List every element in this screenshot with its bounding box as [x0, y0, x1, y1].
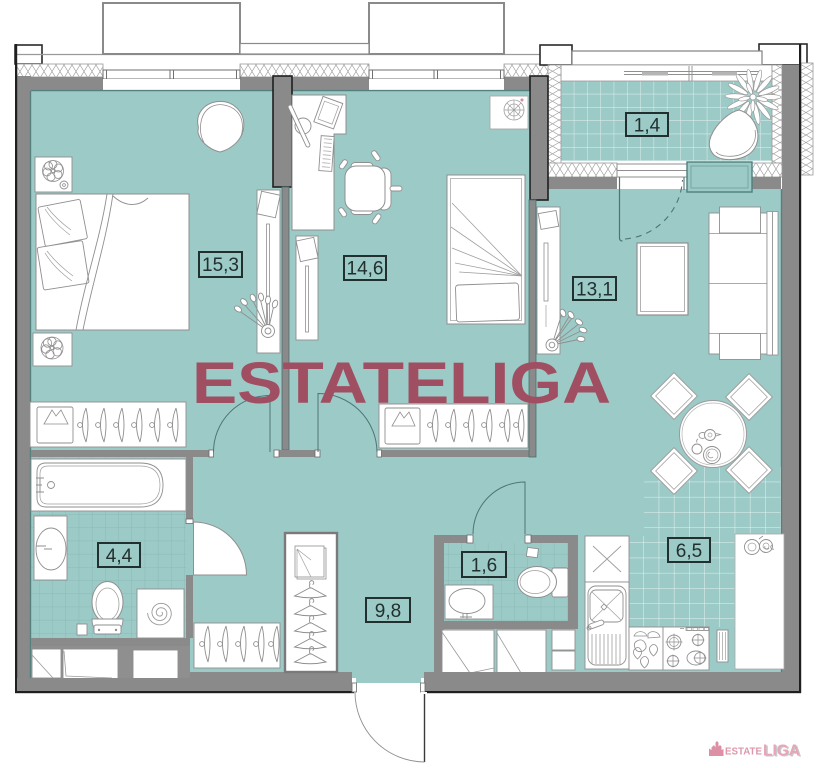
- svg-text:ESTATE: ESTATE: [725, 746, 762, 758]
- svg-text:1,6: 1,6: [471, 556, 497, 577]
- svg-text:ESTATELIGA: ESTATELIGA: [192, 351, 611, 416]
- svg-text:6,5: 6,5: [676, 541, 702, 562]
- svg-text:1,4: 1,4: [634, 116, 661, 137]
- svg-text:9,8: 9,8: [375, 601, 401, 622]
- svg-text:15,3: 15,3: [202, 255, 239, 276]
- svg-text:14,6: 14,6: [347, 259, 384, 280]
- svg-text:4,4: 4,4: [106, 546, 133, 567]
- svg-text:13,1: 13,1: [576, 280, 613, 301]
- svg-text:LIGA: LIGA: [763, 743, 800, 760]
